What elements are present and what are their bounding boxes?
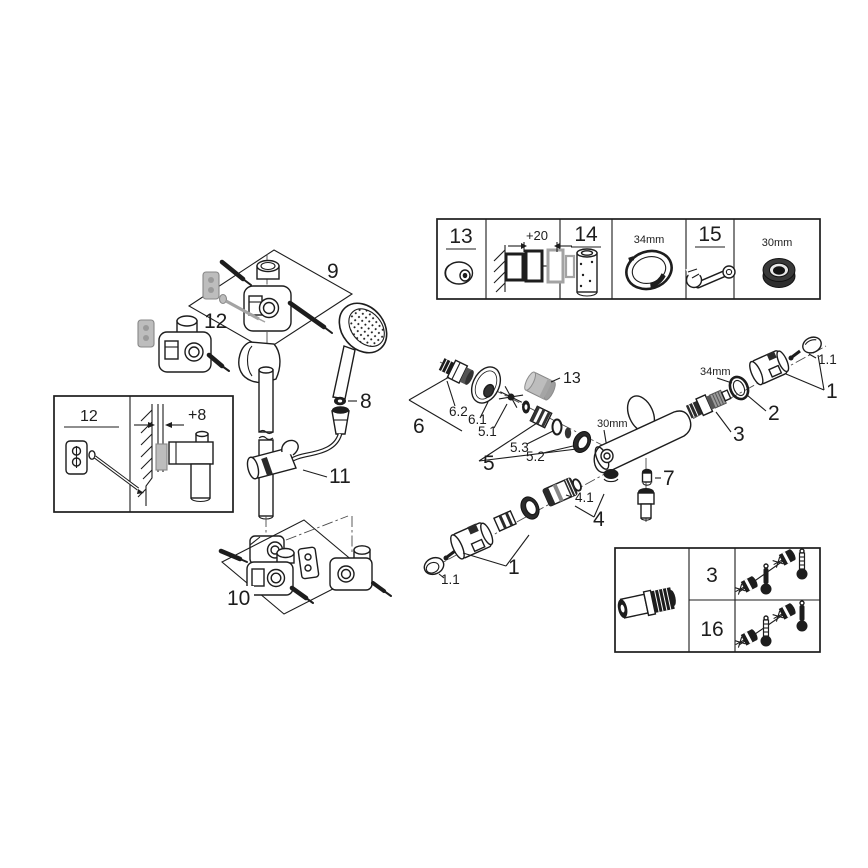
o-ring xyxy=(553,420,562,435)
offset-dimension-label: +8 xyxy=(188,407,206,424)
part-14-label: 14 xyxy=(574,223,598,246)
escutcheon xyxy=(466,362,506,408)
thermo-group-label: 4 xyxy=(593,508,605,531)
handle-adapter xyxy=(494,511,516,531)
spacer xyxy=(565,428,571,439)
depth-dimension-label: +20 xyxy=(526,228,548,243)
wall-plug-icon xyxy=(66,441,87,474)
handle-left-label: 1 xyxy=(508,556,520,579)
handle-cap-right-label: 1.1 xyxy=(818,352,837,367)
bottom-bracket-group-label: 10 xyxy=(227,587,250,610)
wall-plug-icon xyxy=(138,320,154,347)
insert-label: 5.1 xyxy=(478,424,497,439)
glide-holder-label: 11 xyxy=(329,465,351,488)
wrench-icon xyxy=(687,266,736,288)
bracket-side-view xyxy=(169,432,213,502)
s-union-group-label: 6 xyxy=(413,415,425,438)
cartridge-nut-dimension-label: 34mm xyxy=(700,366,731,378)
spare-bottom-bracket xyxy=(330,546,372,590)
screw-plug-label: 7 xyxy=(663,467,675,490)
thermometer-cold-icon xyxy=(761,616,772,647)
screw-icon xyxy=(89,451,144,494)
stop-ring-label: 2 xyxy=(768,402,780,425)
plug-screw-set-label: 12 xyxy=(204,310,227,333)
s-union-label: 6.2 xyxy=(449,404,468,419)
union-nut xyxy=(570,429,594,456)
handle-cap-left-label: 1.1 xyxy=(441,572,460,587)
thermo-cartridge-label: 4.1 xyxy=(575,490,594,505)
aquadimmer-cartridge xyxy=(685,386,733,420)
screw-icon xyxy=(292,588,306,598)
stop-ring-bottom xyxy=(518,494,543,522)
cartridge-label: 3 xyxy=(733,423,745,446)
wall-plug-icon xyxy=(298,547,319,579)
part-15-label: 15 xyxy=(698,223,721,246)
hand-shower xyxy=(330,294,397,399)
wall-depth-detail-icon: +20 xyxy=(494,228,574,292)
variant-row-16-part: 16 xyxy=(700,618,723,641)
hose-gasket-label: 8 xyxy=(360,390,372,413)
bracket-knob xyxy=(257,261,279,280)
thermostat-assembly: 13 6.2 6.1 6 5.1 5.3 5.2 5 30mm xyxy=(409,334,838,587)
ring-dimension-label: 34mm xyxy=(634,234,665,246)
handle-knob-left xyxy=(448,519,496,560)
shower-rail-upper xyxy=(259,367,273,440)
variant-row-3-part: 3 xyxy=(706,564,718,587)
wall-mount-detail-box: 12 +8 xyxy=(54,396,233,512)
temperature-stop-star xyxy=(497,385,525,408)
spare-parts-table: 13 +20 14 xyxy=(437,219,820,299)
body-nut-dimension-label: 30mm xyxy=(597,418,628,430)
thermometer-hot-icon xyxy=(797,601,808,632)
extension-sleeve-icon xyxy=(577,249,597,296)
screw-icon xyxy=(222,262,243,279)
screw-icon xyxy=(373,583,384,591)
thermometer-hot-icon xyxy=(761,564,772,595)
union-nut-icon xyxy=(763,259,795,288)
inlet-orientation-icon-row-16 xyxy=(733,601,808,650)
handle-screw xyxy=(789,351,801,361)
outlet-nipple xyxy=(638,488,654,520)
nut-label: 5.2 xyxy=(526,449,545,464)
handle-knob-right xyxy=(747,348,792,387)
cap-tool-label: 13 xyxy=(563,370,581,387)
hose-connector xyxy=(332,406,349,434)
handle-right-label: 1 xyxy=(826,380,838,403)
detail-plug-screw-label: 12 xyxy=(80,408,98,425)
nut-dimension-label: 30mm xyxy=(762,237,793,249)
check-valve-icon xyxy=(616,586,678,622)
spare-parts-table-border xyxy=(437,219,820,299)
exploded-parts-diagram: 13 +20 14 xyxy=(0,0,868,868)
top-wall-bracket xyxy=(244,286,291,331)
cap-tool-gray xyxy=(523,371,558,402)
top-bracket-group-label: 9 xyxy=(327,260,339,283)
cap-tool-icon xyxy=(445,262,473,284)
s-union xyxy=(437,355,476,387)
thermo-cartridge xyxy=(543,478,578,507)
inlet-variant-table: 3 16 xyxy=(615,548,820,652)
thermometer-cold-icon xyxy=(797,549,808,580)
screw-plug xyxy=(642,469,652,485)
shower-rail-assembly: 9 12 xyxy=(138,250,396,614)
wall-plug-icon xyxy=(203,272,219,299)
offset-detail: +8 xyxy=(134,404,213,506)
locking-ring-icon xyxy=(621,245,676,294)
union-group-label: 5 xyxy=(483,452,495,475)
inlet-orientation-icon-row-3 xyxy=(733,548,808,596)
part-13-label: 13 xyxy=(449,225,472,248)
